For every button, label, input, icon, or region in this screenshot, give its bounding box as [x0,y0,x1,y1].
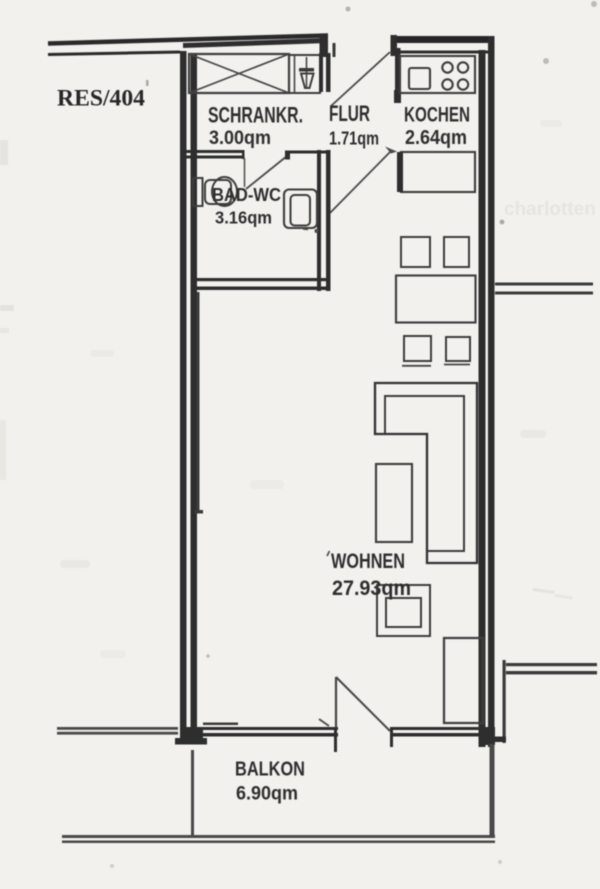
svg-text:6.90qm: 6.90qm [236,784,298,805]
svg-text:KOCHEN: KOCHEN [404,104,470,127]
svg-text:FLUR: FLUR [329,101,370,126]
svg-text:WOHNEN: WOHNEN [331,550,405,573]
svg-text:BAD-WC: BAD-WC [212,185,281,205]
svg-text:RES/404: RES/404 [57,86,146,111]
svg-text:1.71qm: 1.71qm [329,128,379,149]
svg-text:SCHRANKR.: SCHRANKR. [208,103,303,128]
svg-text:3.00qm: 3.00qm [209,128,271,149]
svg-text:charlotten: charlotten [504,199,596,220]
svg-text:3.16qm: 3.16qm [215,208,272,228]
svg-text:2.64qm: 2.64qm [405,127,467,149]
svg-text:BALKON: BALKON [235,759,305,781]
svg-text:27.93qm: 27.93qm [332,577,411,600]
